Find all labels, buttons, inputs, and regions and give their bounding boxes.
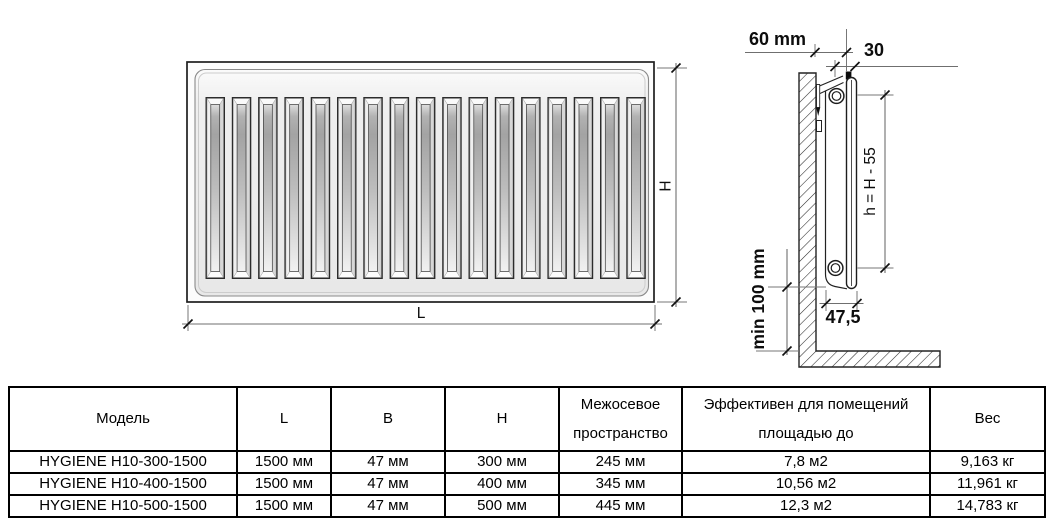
radiator-profile <box>816 72 857 289</box>
col-header-weight: Вес <box>930 387 1045 451</box>
radiator-slat <box>496 98 514 279</box>
bracket-rail <box>817 85 820 108</box>
radiator-slat <box>206 98 224 279</box>
radiator-slat <box>417 98 435 279</box>
cell-depth: 47 мм <box>331 451 445 473</box>
dimension-depth: 47,5 <box>820 290 864 327</box>
dimension-wall-distance-label: 60 mm <box>749 29 806 49</box>
wall-floor-section <box>799 73 940 367</box>
cell-height: 500 мм <box>445 495 559 517</box>
cell-axis-spacing: 345 мм <box>559 473 682 495</box>
radiator-slat <box>627 98 645 279</box>
cell-height: 300 мм <box>445 451 559 473</box>
dimension-axis-height-label: h = H - 55 <box>862 147 879 216</box>
dimension-height-label: H <box>658 180 675 191</box>
cell-weight: 9,163 кг <box>930 451 1045 473</box>
radiator-slat <box>311 98 329 279</box>
cell-model: HYGIENE H10-300-1500 <box>9 451 237 473</box>
dimension-length-label: L <box>417 305 426 322</box>
dimension-height: H <box>657 63 687 307</box>
cell-length: 1500 мм <box>237 495 331 517</box>
col-header-room-area: Эффективен для помещений площадью до <box>682 387 930 451</box>
radiator-slat <box>259 98 277 279</box>
radiator-slat <box>390 98 408 279</box>
col-header-axis-spacing: Межосевое пространство <box>559 387 682 451</box>
radiator-slat <box>233 98 251 279</box>
technical-drawing: L H 60 mm <box>0 0 1052 385</box>
cell-depth: 47 мм <box>331 495 445 517</box>
dimension-top-offset: 30 <box>826 40 958 77</box>
spec-table: Модель L B H Межосевое пространство Эффе… <box>8 386 1046 518</box>
bottom-connection-bore <box>831 264 840 273</box>
cell-room-area: 12,3 м2 <box>682 495 930 517</box>
cell-model: HYGIENE H10-500-1500 <box>9 495 237 517</box>
radiator-slat <box>285 98 303 279</box>
col-header-l: L <box>237 387 331 451</box>
radiator-body-back <box>826 91 848 289</box>
dimension-floor-clearance-label: min 100 mm <box>748 248 768 349</box>
cell-length: 1500 мм <box>237 451 331 473</box>
cell-depth: 47 мм <box>331 473 445 495</box>
radiator-slat <box>364 98 382 279</box>
cell-weight: 11,961 кг <box>930 473 1045 495</box>
dimension-top-offset-label: 30 <box>864 40 884 60</box>
table-row: HYGIENE H10-500-1500 1500 мм 47 мм 500 м… <box>9 495 1045 517</box>
dimension-depth-label: 47,5 <box>825 307 860 327</box>
cell-room-area: 10,56 м2 <box>682 473 930 495</box>
dimension-axis-height: h = H - 55 <box>858 90 894 273</box>
cell-model: HYGIENE H10-400-1500 <box>9 473 237 495</box>
col-header-h: H <box>445 387 559 451</box>
cell-axis-spacing: 445 мм <box>559 495 682 517</box>
cell-weight: 14,783 кг <box>930 495 1045 517</box>
table-row: HYGIENE H10-400-1500 1500 мм 47 мм 400 м… <box>9 473 1045 495</box>
cell-length: 1500 мм <box>237 473 331 495</box>
radiator-slat <box>522 98 540 279</box>
radiator-slat <box>338 98 356 279</box>
radiator-slat <box>469 98 487 279</box>
bracket-arrow <box>816 108 820 117</box>
col-header-b: B <box>331 387 445 451</box>
radiator-slat <box>601 98 619 279</box>
radiator-slat <box>574 98 592 279</box>
radiator-slat <box>548 98 566 279</box>
wall-clip <box>817 121 822 132</box>
cell-axis-spacing: 245 мм <box>559 451 682 473</box>
table-header-row: Модель L B H Межосевое пространство Эффе… <box>9 387 1045 451</box>
radiator-slat <box>443 98 461 279</box>
radiator-slats <box>206 98 645 279</box>
col-header-model: Модель <box>9 387 237 451</box>
cell-height: 400 мм <box>445 473 559 495</box>
side-view: 60 mm 30 h = H - 55 min 100 mm <box>745 29 958 367</box>
cell-room-area: 7,8 м2 <box>682 451 930 473</box>
table-row: HYGIENE H10-300-1500 1500 мм 47 мм 300 м… <box>9 451 1045 473</box>
top-connection-bore <box>832 92 841 101</box>
dimension-length: L <box>182 305 662 331</box>
front-view: L H <box>182 62 687 331</box>
